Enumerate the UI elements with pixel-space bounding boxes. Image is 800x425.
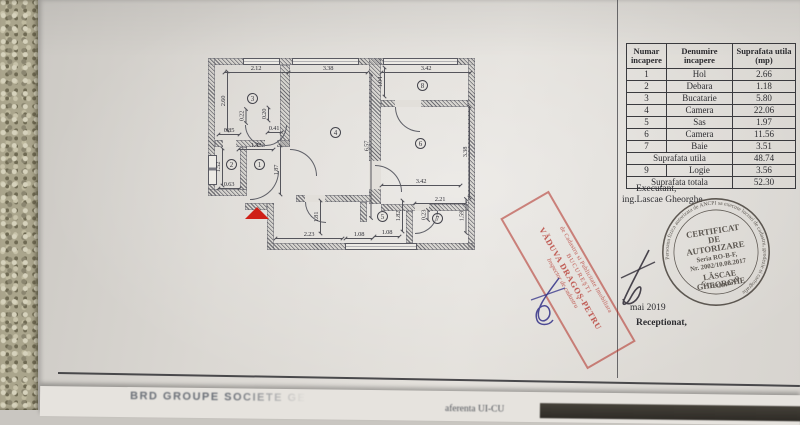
underlying-dark-area <box>540 403 800 421</box>
cell-number: 9 <box>627 165 667 177</box>
dimension-label: 1.81 <box>313 212 320 223</box>
room-number-badge: 7 <box>432 213 443 224</box>
dimension: 1.87 <box>273 145 281 195</box>
dimension-line <box>227 71 228 131</box>
dimension-line <box>381 72 471 73</box>
door-opening <box>395 100 421 107</box>
room-number-badge: 4 <box>330 127 341 138</box>
dimension-label: 1.08 <box>354 231 365 238</box>
cell-name: Hol <box>666 69 732 81</box>
cell-number: 5 <box>627 117 667 129</box>
area-table: Numar incapere Denumire incapere Suprafa… <box>626 43 796 189</box>
wall-hall-debara <box>240 147 247 190</box>
inspector-signature <box>525 274 571 326</box>
window-logie <box>383 58 458 65</box>
dimension-line <box>320 200 321 234</box>
cell-area: 5.80 <box>732 93 795 105</box>
cell-area: 3.56 <box>732 165 795 177</box>
room-number-badge: 8 <box>417 80 428 91</box>
dimension-line <box>238 149 274 150</box>
executant-label: Executant, <box>622 184 703 195</box>
dimension-label: 2.21 <box>435 196 446 203</box>
cell-name: Bucatarie <box>666 93 732 105</box>
dimension-line <box>288 72 368 73</box>
cell-name: Sas <box>666 117 732 129</box>
dimension: 1.82 <box>395 200 403 232</box>
dimension-label: 1.87 <box>273 165 280 176</box>
dimension: 6.57 <box>363 74 371 219</box>
table-row: 7Baie3.51 <box>627 141 796 153</box>
room-number-badge: 6 <box>415 138 426 149</box>
table-row: 4Camera22.06 <box>627 105 796 117</box>
dimension: 3.38 <box>288 65 368 73</box>
room-number-badge: 2 <box>226 159 237 170</box>
dimension-label: 3.38 <box>462 147 469 158</box>
cell-area: 3.51 <box>732 141 795 153</box>
dimension-label: 1.42 <box>251 142 262 149</box>
dimension: 0.23 <box>420 210 428 221</box>
dimension: 2.23 <box>275 231 343 239</box>
dimension: 1.59 <box>458 199 466 234</box>
dimension-label: 2.12 <box>251 65 262 72</box>
table-header-row: Numar incapere Denumire incapere Suprafa… <box>627 44 796 69</box>
cell-area: 11.56 <box>732 129 795 141</box>
receptionat-label: Receptionat, <box>636 318 687 328</box>
room-number-badge: 3 <box>247 93 258 104</box>
area-table-body: 1Hol2.662Debara1.183Bucatarie5.804Camera… <box>627 69 796 189</box>
cell-number: 6 <box>627 129 667 141</box>
underlying-reference-text: aferenta UI-CU <box>445 404 504 415</box>
dimension-label: 2.60 <box>220 96 227 107</box>
carpet-background <box>0 0 40 410</box>
dimension-line <box>218 188 240 189</box>
dimension-line <box>218 134 240 135</box>
dimension-line <box>224 72 289 73</box>
dimension: 0.20 <box>261 107 269 121</box>
cell-number: 4 <box>627 105 667 117</box>
cell-area: 1.18 <box>732 81 795 93</box>
cell-name: Debara <box>666 81 732 93</box>
dimension-label: 0.41 <box>269 125 280 132</box>
dimension: 0.22 <box>238 109 246 124</box>
cell-number: 3 <box>627 93 667 105</box>
table-subtotal-row: Suprafata utila48.74 <box>627 153 796 165</box>
dimension-line <box>465 199 466 234</box>
dimension: 1.08 <box>345 231 373 239</box>
dimension-line <box>374 236 400 237</box>
dimension: 0.85 <box>218 127 240 135</box>
door-opening <box>223 140 236 147</box>
door-arc <box>290 149 317 176</box>
dimension-line <box>402 200 403 232</box>
door-arc <box>395 107 420 132</box>
cell-number: 1 <box>627 69 667 81</box>
cell-number: 7 <box>627 141 667 153</box>
dimension-line <box>384 67 385 97</box>
wall-under-debara <box>208 189 247 196</box>
dimension-line <box>427 210 428 221</box>
wall-sas-baie <box>406 211 413 243</box>
dimension: 1.81 <box>313 200 321 234</box>
table-row: 3Bucatarie5.80 <box>627 93 796 105</box>
cell-number: 2 <box>627 81 667 93</box>
window-kitchen <box>243 58 280 65</box>
photo-of-floorplan-document: { "page": {"date": "mai 2019", "receptio… <box>0 0 800 410</box>
executant-signature <box>613 246 661 306</box>
dimension-label: 6.57 <box>363 141 370 152</box>
dimension-label: 3.42 <box>416 178 427 185</box>
cell-name: Baie <box>666 141 732 153</box>
dimension-line <box>275 238 343 239</box>
dimension-line <box>245 109 246 124</box>
subtotal-value: 48.74 <box>732 153 795 165</box>
dimension: 0.41 <box>267 125 282 133</box>
dimension-label: 1.59 <box>458 211 465 222</box>
cell-name: Camera <box>666 105 732 117</box>
table-row: 2Debara1.18 <box>627 81 796 93</box>
header-suprafata-utila: Suprafata utila (mp) <box>732 44 795 69</box>
dimension-label: 0.63 <box>224 181 235 188</box>
dimension: 1.42 <box>238 142 274 150</box>
window-living <box>292 58 359 65</box>
entrance-triangle-marker <box>245 207 269 219</box>
dimension-line <box>370 74 371 219</box>
dimension-line <box>345 238 373 239</box>
cell-area: 1.97 <box>732 117 795 129</box>
dimension-label: 1.04 <box>377 77 384 88</box>
subtotal-label: Suprafata utila <box>627 153 733 165</box>
dimension-label: 3.42 <box>421 65 432 72</box>
table-row: 9Logie3.56 <box>627 165 796 177</box>
dimension-label: 1.82 <box>395 211 402 222</box>
certification-round-stamp: Persoana fizica autorizata de ANCPI sa e… <box>650 186 783 319</box>
dimension-line <box>280 145 281 195</box>
dimension: 0.63 <box>218 181 240 189</box>
date-text: mai 2019 <box>630 303 666 313</box>
table-row: 6Camera11.56 <box>627 129 796 141</box>
underlying-bank-text: BRD GROUPE SOCIETE GEN <box>130 390 316 404</box>
dimension-label: 2.23 <box>304 231 315 238</box>
dimension-label: 1.08 <box>382 229 393 236</box>
dimension-label: 3.38 <box>323 65 334 72</box>
cell-area: 2.66 <box>732 69 795 81</box>
cell-name: Logie <box>666 165 732 177</box>
cell-name: Camera <box>666 129 732 141</box>
dimension: 2.60 <box>220 71 228 131</box>
room-number-badge: 1 <box>254 159 265 170</box>
dimension-label: 1.52 <box>215 162 222 173</box>
dimension-line <box>381 185 461 186</box>
window-bottom <box>345 243 417 250</box>
dimension: 3.42 <box>381 65 471 73</box>
table-row: 1Hol2.66 <box>627 69 796 81</box>
header-numar-incapere: Numar incapere <box>627 44 667 69</box>
dimension-line <box>469 106 470 198</box>
dimension: 3.38 <box>462 106 470 198</box>
floorplan: 2.123.383.422.601.040.220.200.850.411.42… <box>203 53 495 271</box>
dimension-line <box>267 132 282 133</box>
dimension-label: 0.85 <box>224 127 235 134</box>
cell-area: 22.06 <box>732 105 795 117</box>
room-number-badge: 5 <box>377 211 388 222</box>
dimension-line <box>268 107 269 121</box>
dimension: 2.12 <box>224 65 289 73</box>
header-denumire-incapere: Denumire incapere <box>666 44 732 69</box>
table-row: 5Sas1.97 <box>627 117 796 129</box>
dimension: 3.42 <box>381 178 461 186</box>
dimension: 1.08 <box>374 229 400 237</box>
dimension: 1.04 <box>377 67 385 97</box>
